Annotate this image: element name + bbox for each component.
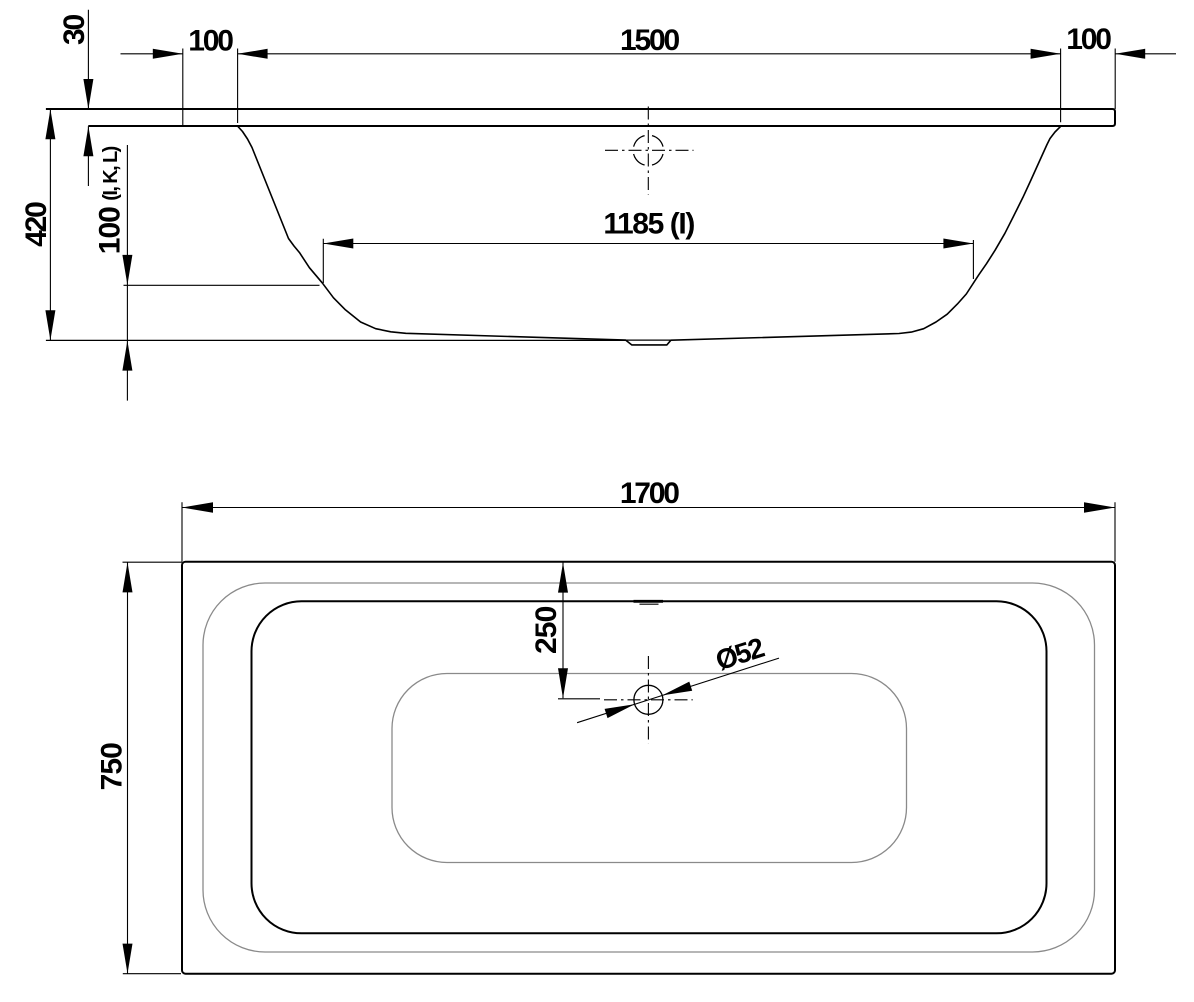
svg-text:(I, K, L): (I, K, L) bbox=[100, 146, 122, 200]
svg-text:100: 100 bbox=[188, 24, 233, 57]
svg-text:420: 420 bbox=[20, 202, 53, 247]
svg-text:1500: 1500 bbox=[620, 24, 679, 57]
svg-text:100: 100 bbox=[1066, 23, 1111, 56]
svg-text:1700: 1700 bbox=[620, 477, 679, 510]
svg-text:100: 100 bbox=[93, 207, 126, 254]
svg-text:250: 250 bbox=[530, 606, 563, 654]
svg-text:1185 (I): 1185 (I) bbox=[603, 207, 694, 240]
svg-text:750: 750 bbox=[96, 743, 129, 791]
svg-text:30: 30 bbox=[58, 15, 91, 45]
